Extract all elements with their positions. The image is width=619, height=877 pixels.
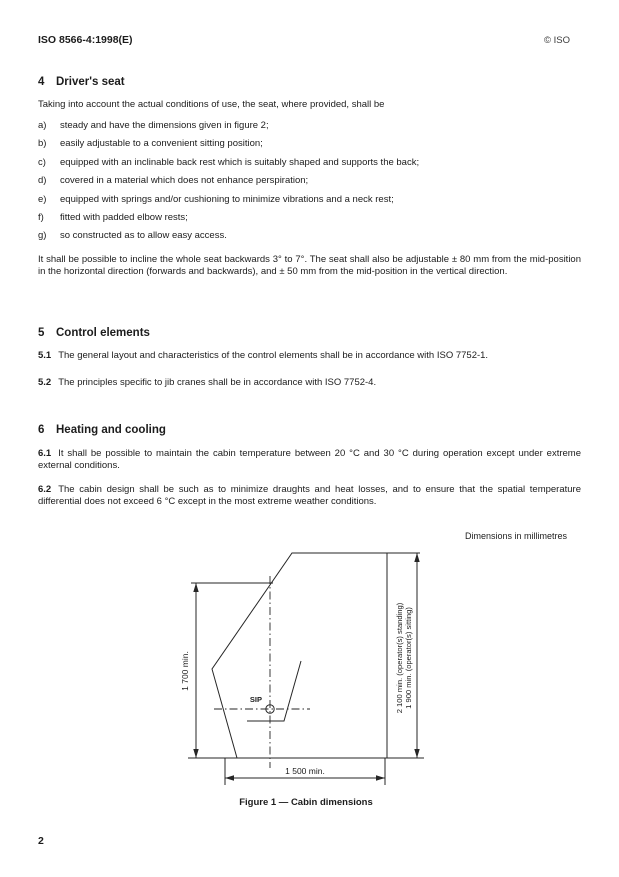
bottom-dim-label: 1 500 min. (285, 766, 325, 776)
clause-text: The principles specific to jib cranes sh… (58, 377, 376, 388)
arrowhead (193, 583, 198, 592)
arrowhead (376, 775, 385, 780)
list-item-text: equipped with springs and/or cushioning … (60, 194, 394, 206)
section-6-heading: 6Heating and cooling (38, 424, 166, 436)
list-item-label: b) (38, 138, 60, 150)
list-item-label: a) (38, 120, 60, 132)
section-4-list: a)steady and have the dimensions given i… (38, 120, 581, 249)
list-item: f)fitted with padded elbow rests; (38, 212, 581, 224)
list-item-label: e) (38, 194, 60, 206)
list-item-label: c) (38, 157, 60, 169)
section-number: 6 (38, 424, 48, 436)
list-item: a)steady and have the dimensions given i… (38, 120, 581, 132)
sip-label: SIP (250, 695, 262, 704)
document-reference: ISO 8566-4:1998(E) (38, 34, 133, 46)
clause-text: The general layout and characteristics o… (58, 350, 488, 361)
list-item: d)covered in a material which does not e… (38, 175, 581, 187)
clause-6-2: 6.2The cabin design shall be such as to … (38, 484, 581, 508)
list-item-text: equipped with an inclinable back rest wh… (60, 157, 419, 169)
right-dim-label-standing: 2 100 min. (operator(s) standing) (395, 602, 404, 713)
clause-5-2: 5.2The principles specific to jib cranes… (38, 377, 581, 389)
list-item-text: steady and have the dimensions given in … (60, 120, 269, 132)
arrowhead (414, 749, 419, 758)
clause-number: 6.2 (38, 484, 51, 495)
clause-5-1: 5.1The general layout and characteristic… (38, 350, 581, 362)
clause-number: 5.2 (38, 377, 51, 388)
seat-profile (247, 661, 301, 721)
list-item: c)equipped with an inclinable back rest … (38, 157, 581, 169)
list-item: g)so constructed as to allow easy access… (38, 230, 581, 242)
list-item-text: easily adjustable to a convenient sittin… (60, 138, 263, 150)
cabin-dimensions-figure: SIP 1 700 min. 2 100 min. (operator(s) s… (150, 545, 470, 790)
list-item-label: f) (38, 212, 60, 224)
section-number: 5 (38, 327, 48, 339)
list-item-text: so constructed as to allow easy access. (60, 230, 227, 242)
cabin-outline (212, 553, 387, 758)
right-dim-label-sitting: 1 900 min. (operator(s) sitting) (404, 607, 413, 709)
list-item-label: g) (38, 230, 60, 242)
section-title: Driver's seat (56, 76, 125, 88)
arrowhead (414, 553, 419, 562)
arrowhead (193, 749, 198, 758)
section-5-heading: 5Control elements (38, 327, 150, 339)
page-number: 2 (38, 835, 44, 847)
section-4-intro: Taking into account the actual condition… (38, 99, 581, 111)
clause-number: 5.1 (38, 350, 51, 361)
arrowhead (225, 775, 234, 780)
clause-text: It shall be possible to maintain the cab… (38, 448, 581, 471)
clause-number: 6.1 (38, 448, 51, 459)
document-page: ISO 8566-4:1998(E) © ISO 4Driver's seat … (0, 0, 619, 877)
section-4-heading: 4Driver's seat (38, 76, 125, 88)
section-4-paragraph: It shall be possible to incline the whol… (38, 254, 581, 278)
list-item: e)equipped with springs and/or cushionin… (38, 194, 581, 206)
clause-6-1: 6.1It shall be possible to maintain the … (38, 448, 581, 472)
section-number: 4 (38, 76, 48, 88)
list-item-text: fitted with padded elbow rests; (60, 212, 188, 224)
copyright-notice: © ISO (544, 35, 570, 46)
list-item-text: covered in a material which does not enh… (60, 175, 308, 187)
list-item: b)easily adjustable to a convenient sitt… (38, 138, 581, 150)
section-title: Control elements (56, 327, 150, 339)
figure-caption: Figure 1 — Cabin dimensions (180, 797, 432, 808)
list-item-label: d) (38, 175, 60, 187)
dimensions-note: Dimensions in millimetres (465, 531, 567, 541)
clause-text: The cabin design shall be such as to min… (38, 484, 581, 507)
section-title: Heating and cooling (56, 424, 166, 436)
left-dim-label: 1 700 min. (180, 651, 190, 691)
